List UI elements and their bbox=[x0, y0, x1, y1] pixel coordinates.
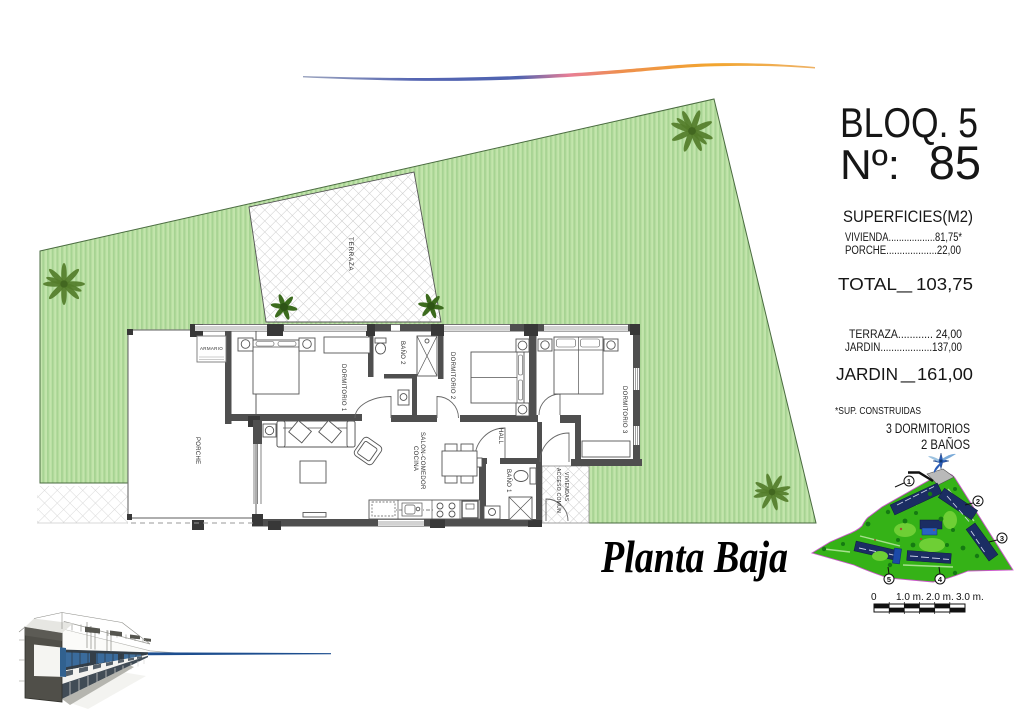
svg-text:COCINA: COCINA bbox=[412, 446, 418, 471]
svg-text:PORCHE: PORCHE bbox=[194, 437, 200, 464]
svg-text:TOTAL: TOTAL bbox=[838, 274, 897, 294]
svg-text:ACCESO COMÚN: ACCESO COMÚN bbox=[555, 468, 562, 513]
svg-text:85: 85 bbox=[929, 136, 981, 189]
svg-text:SALON-COMEDOR: SALON-COMEDOR bbox=[419, 432, 425, 490]
svg-text:103,75: 103,75 bbox=[916, 274, 973, 294]
svg-text:2 BAÑOS: 2 BAÑOS bbox=[921, 437, 970, 452]
svg-text:ARMARIO: ARMARIO bbox=[200, 346, 223, 351]
svg-text:2.0 m.: 2.0 m. bbox=[926, 592, 954, 603]
svg-text:VIVIENDAS: VIVIENDAS bbox=[563, 472, 569, 502]
svg-text:Planta Baja: Planta Baja bbox=[600, 531, 788, 582]
svg-text:JARDIN: JARDIN bbox=[836, 364, 898, 384]
svg-text:1: 1 bbox=[907, 477, 911, 486]
svg-text:Nº:: Nº: bbox=[840, 141, 900, 188]
svg-text:DORMITORIO 3: DORMITORIO 3 bbox=[621, 386, 627, 434]
svg-text:BAÑO 2: BAÑO 2 bbox=[399, 341, 406, 365]
svg-text:161,00: 161,00 bbox=[917, 364, 973, 384]
svg-text:_: _ bbox=[900, 363, 916, 384]
svg-text:*SUP. CONSTRUIDAS: *SUP. CONSTRUIDAS bbox=[835, 406, 921, 417]
svg-text:TERRAZA............ 24,00: TERRAZA............ 24,00 bbox=[849, 329, 962, 341]
svg-text:HALL: HALL bbox=[497, 428, 503, 445]
svg-text:PORCHE...................22,00: PORCHE...................22,00 bbox=[845, 245, 961, 257]
svg-text:JARDIN...................137,0: JARDIN...................137,00 bbox=[845, 342, 962, 354]
svg-text:SUPERFICIES(M2): SUPERFICIES(M2) bbox=[843, 207, 973, 226]
svg-text:3.0 m.: 3.0 m. bbox=[956, 592, 984, 603]
svg-text:5: 5 bbox=[887, 575, 891, 584]
svg-text:VIVIENDA..................81,7: VIVIENDA..................81,75* bbox=[845, 232, 962, 244]
svg-text:BAÑO 1: BAÑO 1 bbox=[505, 469, 512, 493]
svg-text:DORMITORIO 1: DORMITORIO 1 bbox=[340, 364, 346, 412]
svg-text:3 DORMITORIOS: 3 DORMITORIOS bbox=[886, 421, 970, 436]
svg-text:0: 0 bbox=[871, 592, 877, 603]
svg-text:1.0 m.: 1.0 m. bbox=[896, 592, 924, 603]
svg-text:TERRAZA: TERRAZA bbox=[347, 237, 354, 272]
svg-text:2: 2 bbox=[976, 497, 980, 506]
svg-text:3: 3 bbox=[1000, 534, 1004, 543]
svg-text:DORMITORIO 2: DORMITORIO 2 bbox=[449, 352, 455, 400]
svg-text:_: _ bbox=[895, 273, 912, 294]
